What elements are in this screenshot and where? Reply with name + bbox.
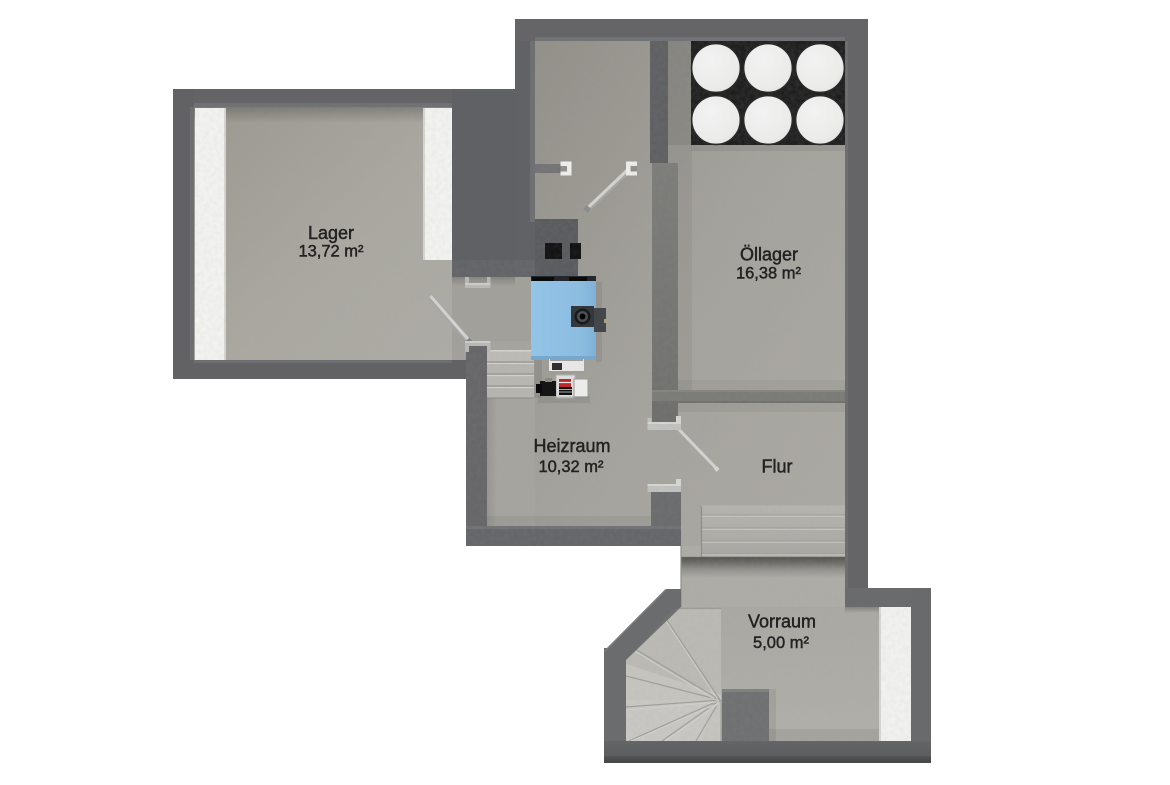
- svg-text:Vorraum: Vorraum: [748, 612, 816, 632]
- svg-text:Flur: Flur: [762, 457, 793, 477]
- svg-text:13,72 m²: 13,72 m²: [298, 243, 364, 261]
- svg-text:16,38 m²: 16,38 m²: [736, 265, 802, 283]
- svg-text:5,00 m²: 5,00 m²: [753, 634, 809, 652]
- svg-text:Lager: Lager: [308, 223, 354, 243]
- svg-text:Öllager: Öllager: [740, 245, 798, 265]
- svg-text:10,32 m²: 10,32 m²: [538, 458, 604, 476]
- svg-text:Heizraum: Heizraum: [533, 436, 610, 456]
